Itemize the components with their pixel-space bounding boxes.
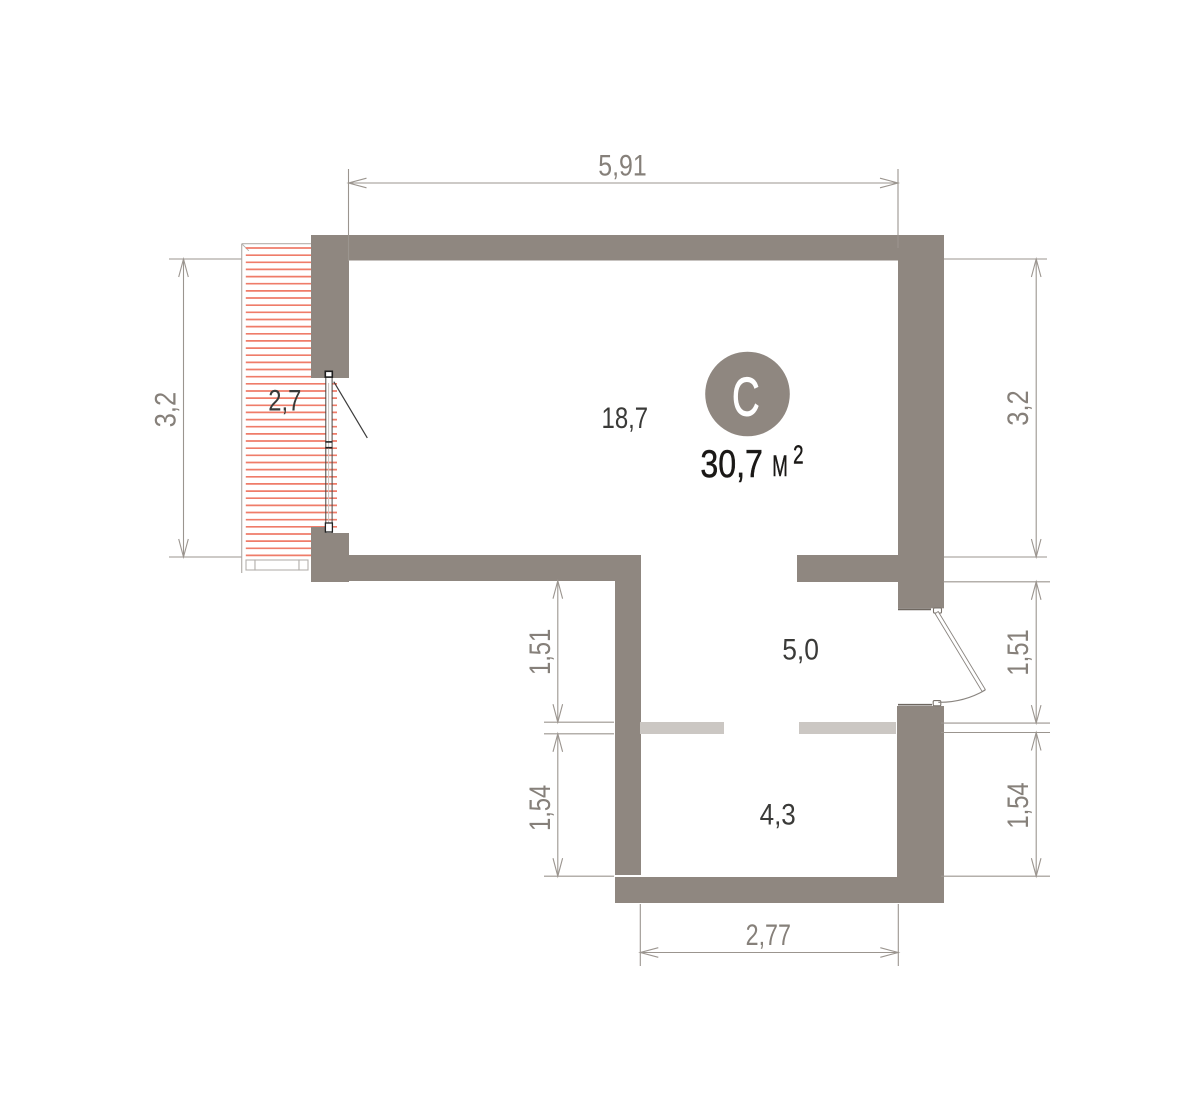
svg-text:2,77: 2,77	[746, 919, 791, 952]
svg-text:1,54: 1,54	[1002, 782, 1035, 828]
svg-text:4,3: 4,3	[760, 799, 796, 831]
svg-text:2: 2	[793, 442, 803, 470]
svg-text:5,0: 5,0	[782, 634, 819, 666]
svg-text:18,7: 18,7	[602, 403, 649, 435]
svg-text:М: М	[772, 450, 788, 483]
svg-text:5,91: 5,91	[598, 150, 646, 183]
svg-text:C: C	[732, 365, 760, 427]
svg-text:3,2: 3,2	[149, 392, 182, 428]
svg-text:1,51: 1,51	[524, 629, 557, 675]
svg-text:1,51: 1,51	[1002, 629, 1035, 675]
svg-text:2,7: 2,7	[268, 386, 301, 418]
svg-text:1,54: 1,54	[524, 785, 557, 831]
svg-text:3,2: 3,2	[1002, 390, 1035, 426]
svg-text:30,7: 30,7	[700, 443, 763, 486]
